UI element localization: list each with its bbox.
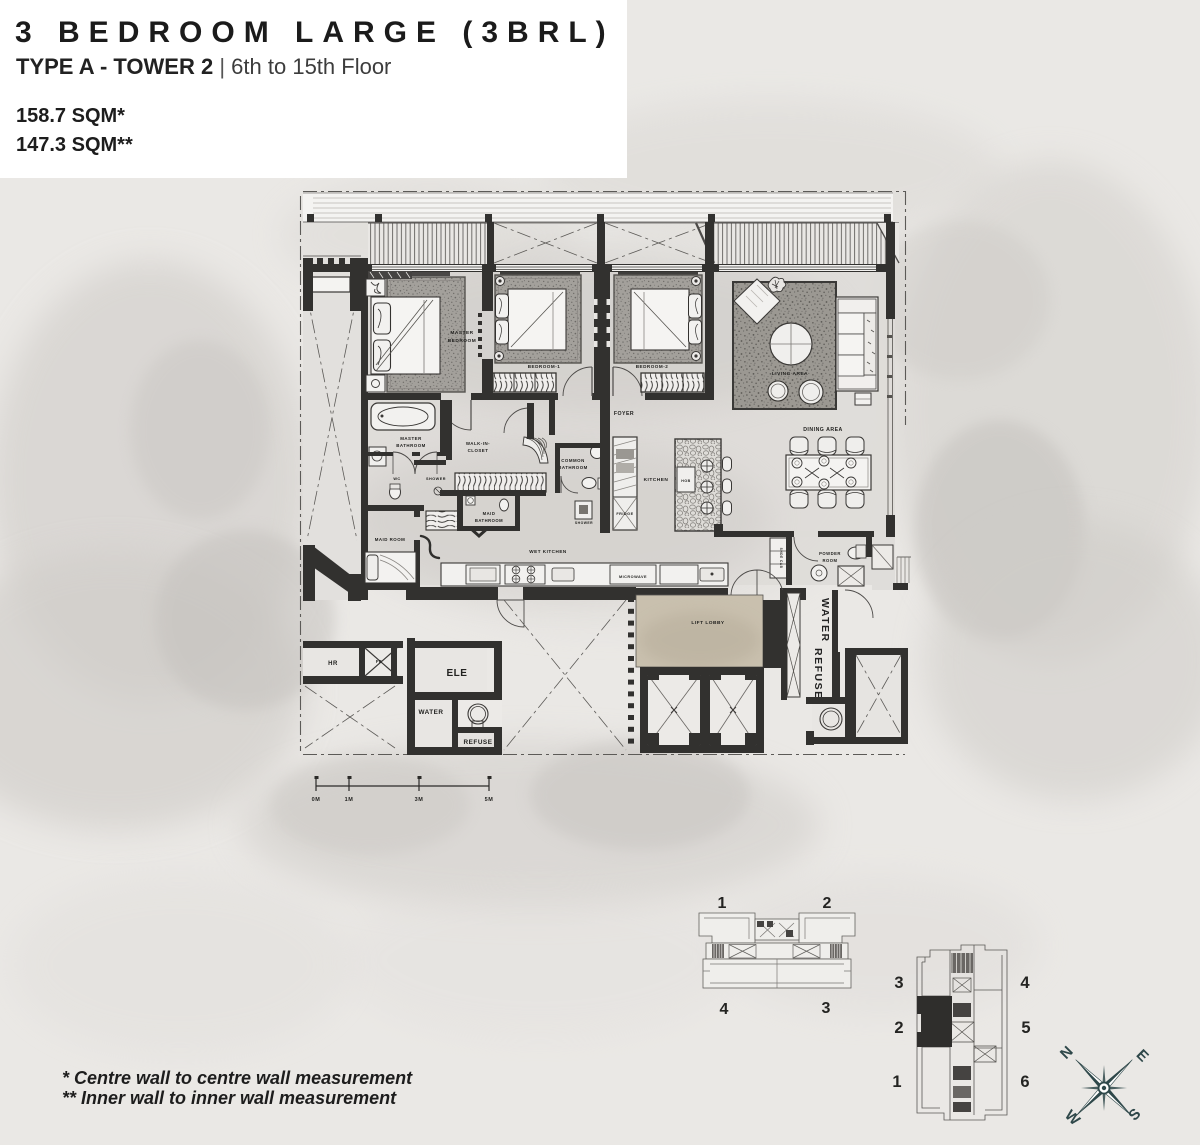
svg-text:BATHROOM: BATHROOM xyxy=(558,465,588,470)
svg-text:5M: 5M xyxy=(485,797,494,803)
svg-text:6: 6 xyxy=(1020,1073,1029,1091)
svg-text:WALK-IN-: WALK-IN- xyxy=(466,441,490,446)
svg-text:DINING AREA: DINING AREA xyxy=(803,427,843,433)
svg-text:ELE: ELE xyxy=(447,668,468,679)
svg-text:1M: 1M xyxy=(345,797,354,803)
svg-text:WATER: WATER xyxy=(819,598,831,643)
svg-text:CLOSET: CLOSET xyxy=(468,448,489,453)
svg-text:POWDER: POWDER xyxy=(819,551,841,556)
svg-text:LIVING AREA: LIVING AREA xyxy=(772,371,808,377)
svg-text:4: 4 xyxy=(1020,974,1030,992)
svg-text:WATER: WATER xyxy=(418,709,443,716)
svg-text:MASTER: MASTER xyxy=(450,330,473,336)
svg-text:SHOE CAB: SHOE CAB xyxy=(779,548,783,569)
svg-text:BEDROOM-2: BEDROOM-2 xyxy=(636,364,669,369)
svg-text:FE: FE xyxy=(376,659,382,664)
svg-text:FOYER: FOYER xyxy=(614,411,634,417)
svg-text:3M: 3M xyxy=(415,797,424,803)
svg-text:1: 1 xyxy=(718,895,727,912)
svg-text:3: 3 xyxy=(822,1000,831,1017)
svg-text:BEDROOM-1: BEDROOM-1 xyxy=(528,364,561,369)
svg-text:MASTER: MASTER xyxy=(400,436,422,441)
svg-text:BEDROOM: BEDROOM xyxy=(448,338,477,344)
svg-text:BATHROOM: BATHROOM xyxy=(396,443,426,448)
svg-text:2: 2 xyxy=(823,895,832,912)
svg-text:SHOWER: SHOWER xyxy=(426,477,446,481)
svg-text:0M: 0M xyxy=(312,797,321,803)
svg-text:ROOM: ROOM xyxy=(822,558,837,563)
svg-text:1: 1 xyxy=(892,1073,901,1091)
svg-text:KITCHEN: KITCHEN xyxy=(644,477,669,483)
svg-text:WET KITCHEN: WET KITCHEN xyxy=(529,549,567,554)
svg-text:WC: WC xyxy=(393,477,400,481)
svg-text:MAID: MAID xyxy=(483,511,496,516)
svg-text:SHOWER: SHOWER xyxy=(575,521,593,525)
svg-text:BATHROOM: BATHROOM xyxy=(475,518,503,523)
svg-text:5: 5 xyxy=(1021,1019,1030,1037)
svg-text:REFUSE: REFUSE xyxy=(812,648,824,700)
svg-text:4: 4 xyxy=(720,1001,729,1018)
svg-text:MICROWAVE: MICROWAVE xyxy=(619,575,647,579)
svg-text:2: 2 xyxy=(894,1019,903,1037)
svg-text:COMMON: COMMON xyxy=(561,458,585,463)
svg-text:HOB: HOB xyxy=(681,479,691,483)
svg-text:3: 3 xyxy=(894,974,903,992)
svg-text:FRIDGE: FRIDGE xyxy=(616,512,633,516)
svg-text:MAID ROOM: MAID ROOM xyxy=(375,537,406,542)
svg-text:REFUSE: REFUSE xyxy=(464,739,493,746)
svg-text:LIFT LOBBY: LIFT LOBBY xyxy=(691,620,725,626)
svg-text:HR: HR xyxy=(328,661,338,667)
